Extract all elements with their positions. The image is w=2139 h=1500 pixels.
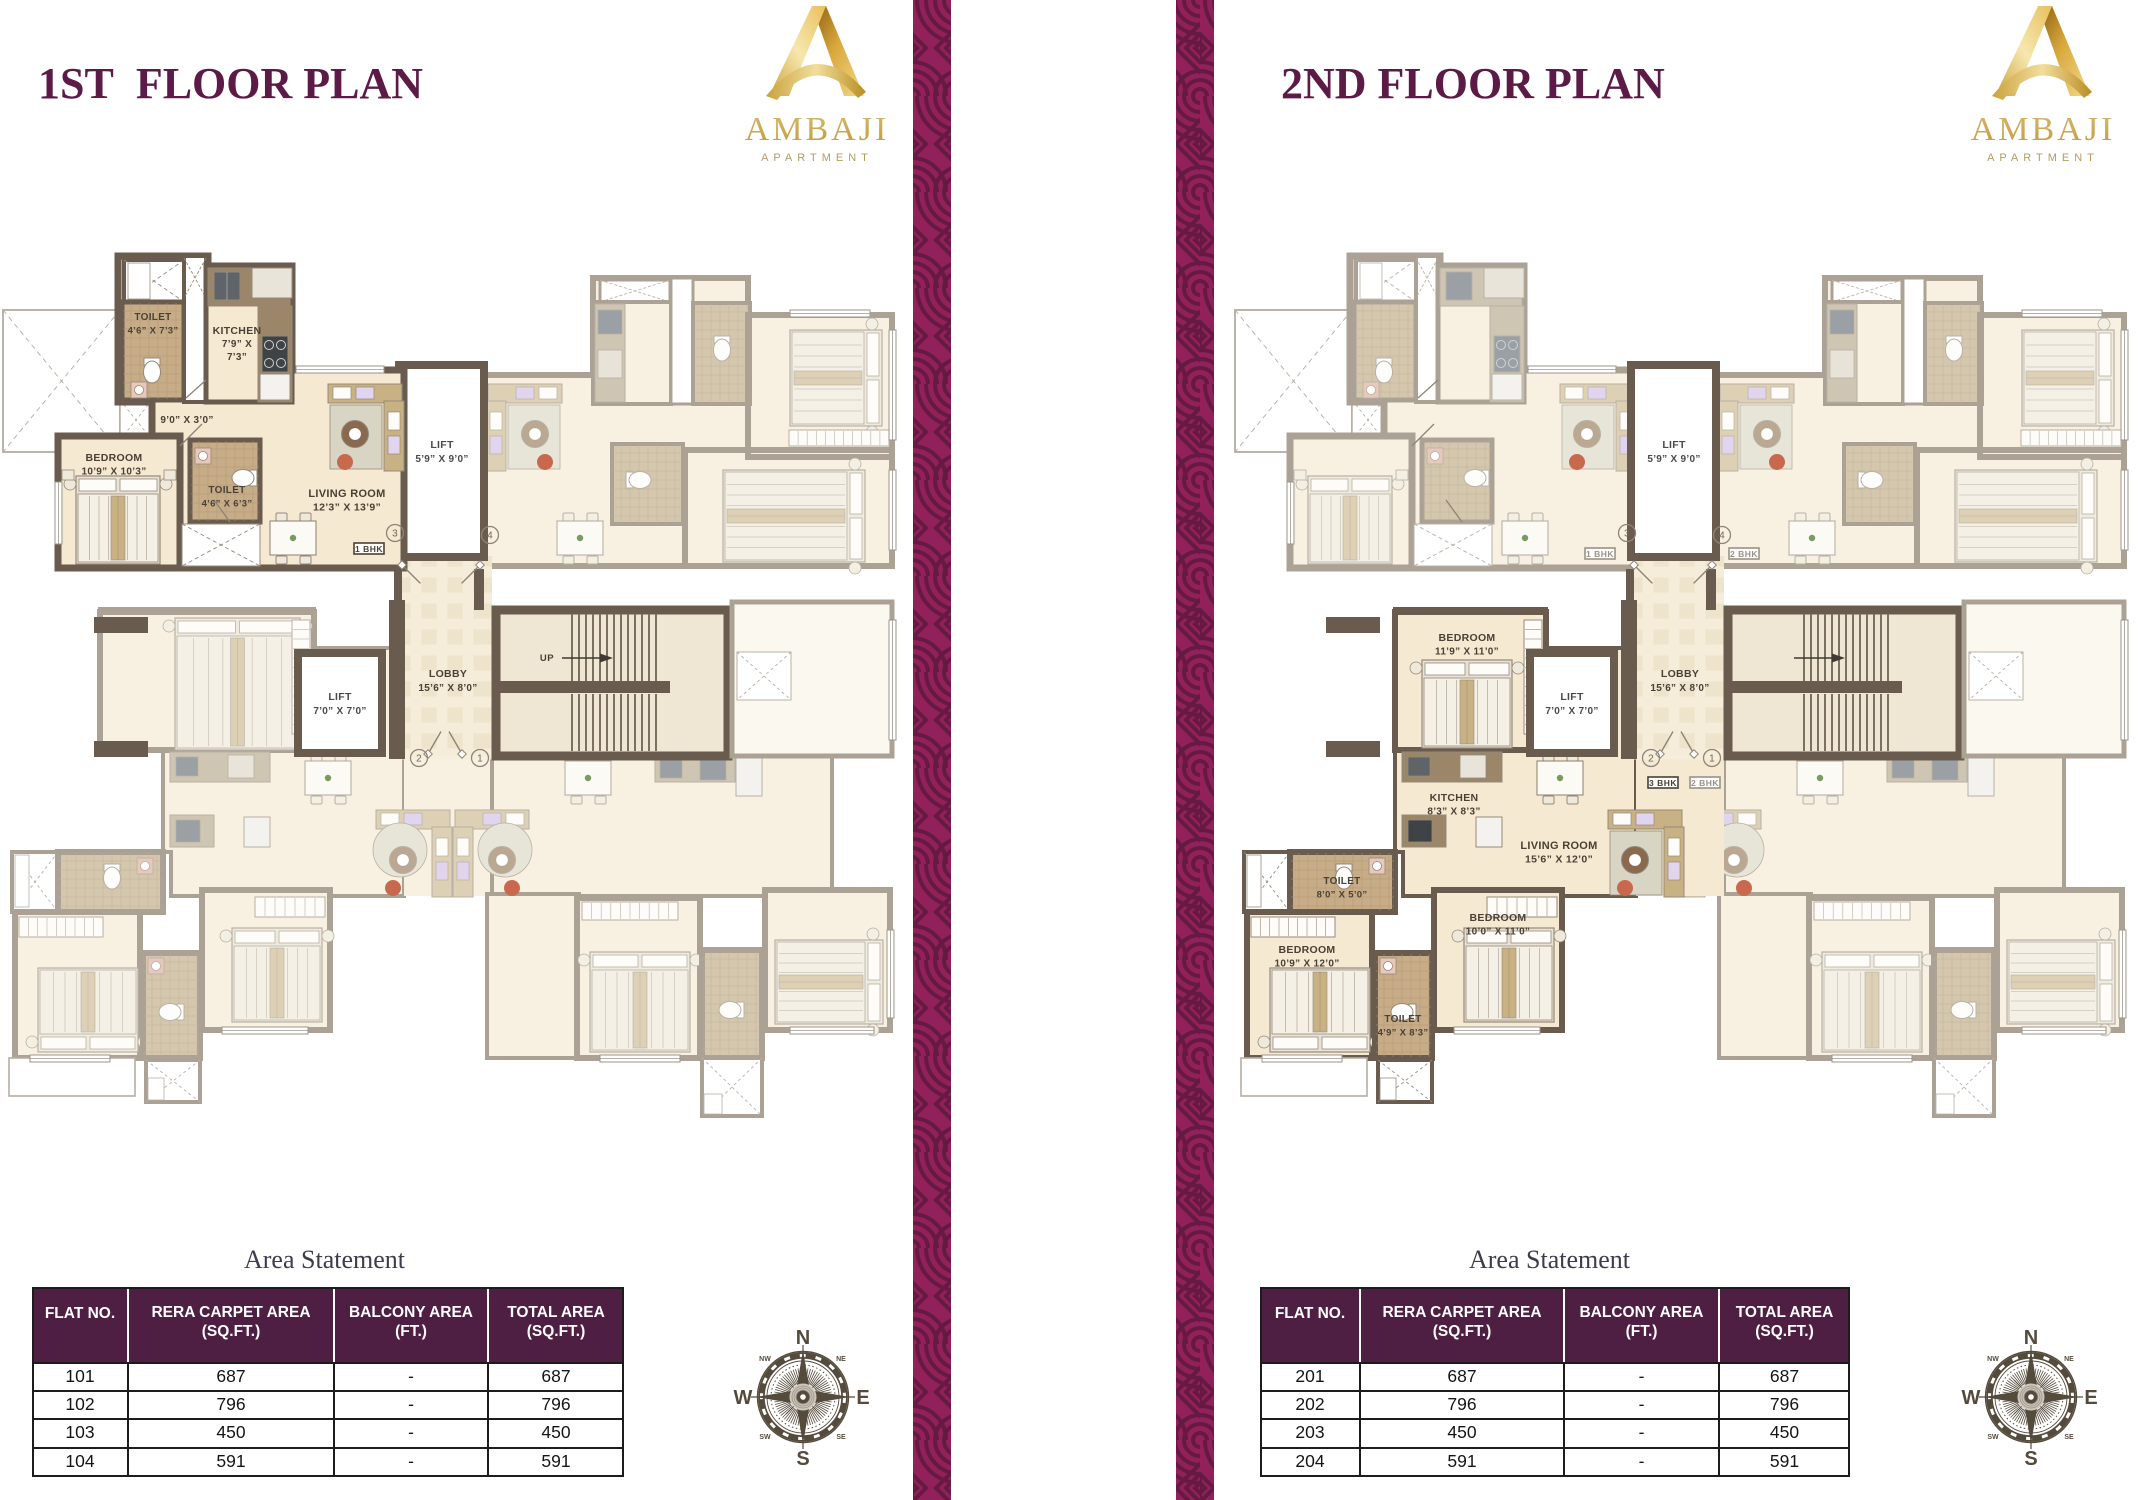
svg-text:4’6” X 6’3”: 4’6” X 6’3” [202,499,253,510]
svg-text:LIFT: LIFT [1560,691,1584,703]
svg-text:4’9” X 8’3”: 4’9” X 8’3” [1378,1028,1429,1039]
svg-text:4’6” X 7’3”: 4’6” X 7’3” [128,326,179,337]
svg-text:LIVING ROOM: LIVING ROOM [1520,840,1597,852]
svg-text:15’6” X 12’0”: 15’6” X 12’0” [1525,854,1593,866]
svg-text:NE: NE [836,1356,846,1363]
svg-text:W: W [734,1387,753,1409]
svg-text:10’0” X 11’0”: 10’0” X 11’0” [1466,927,1531,938]
svg-text:LIFT: LIFT [430,439,454,451]
svg-text:N: N [2024,1327,2038,1349]
svg-text:SW: SW [759,1434,771,1441]
svg-text:KITCHEN: KITCHEN [1430,792,1479,804]
svg-text:W: W [1962,1387,1981,1409]
svg-text:7’9” X: 7’9” X [222,339,252,350]
svg-text:3: 3 [392,529,398,540]
svg-text:S: S [2024,1448,2037,1470]
svg-text:11’9” X 11’0”: 11’9” X 11’0” [1435,647,1499,658]
svg-text:7’0” X 7’0”: 7’0” X 7’0” [1545,706,1598,717]
svg-text:4: 4 [1719,531,1725,542]
svg-text:BEDROOM: BEDROOM [1470,912,1527,924]
svg-text:AMBAJI: AMBAJI [745,111,890,148]
svg-text:LOBBY: LOBBY [1661,668,1699,680]
svg-text:3: 3 [1624,529,1630,540]
svg-text:BEDROOM: BEDROOM [86,452,143,464]
svg-text:10’9” X 10’3”: 10’9” X 10’3” [81,467,146,478]
svg-text:7’0” X 7’0”: 7’0” X 7’0” [313,706,366,717]
svg-text:BEDROOM: BEDROOM [1439,632,1496,644]
svg-text:8’3” X 8’3”: 8’3” X 8’3” [1427,807,1480,818]
svg-text:BEDROOM: BEDROOM [1279,944,1336,956]
svg-text:3 BHK: 3 BHK [1649,778,1677,788]
svg-text:N: N [796,1327,810,1349]
svg-text:APARTMENT: APARTMENT [761,152,873,164]
svg-text:LIFT: LIFT [1662,439,1686,451]
svg-text:TOILET: TOILET [1384,1014,1421,1025]
svg-text:NW: NW [759,1356,771,1363]
svg-text:5’9” X 9’0”: 5’9” X 9’0” [415,454,468,465]
svg-text:SE: SE [836,1434,846,1441]
svg-text:SE: SE [2064,1434,2074,1441]
svg-text:TOILET: TOILET [1323,876,1360,887]
svg-text:SW: SW [1987,1434,1999,1441]
svg-text:1: 1 [477,754,483,765]
svg-text:LOBBY: LOBBY [429,668,467,680]
svg-text:APARTMENT: APARTMENT [1987,152,2099,164]
svg-text:KITCHEN: KITCHEN [213,325,262,337]
svg-text:LIFT: LIFT [328,691,352,703]
svg-text:12’3” X 13’9”: 12’3” X 13’9” [313,502,381,514]
svg-text:5’9” X 9’0”: 5’9” X 9’0” [1647,454,1700,465]
svg-text:LIVING ROOM: LIVING ROOM [308,488,385,500]
svg-text:9’0” X 3’0”: 9’0” X 3’0” [160,415,213,426]
svg-text:E: E [2084,1387,2097,1409]
svg-text:1: 1 [1709,754,1715,765]
svg-text:10’9” X 12’0”: 10’9” X 12’0” [1274,959,1339,970]
svg-text:NW: NW [1987,1356,1999,1363]
svg-text:2 BHK: 2 BHK [1691,778,1719,788]
svg-text:2: 2 [1648,754,1654,765]
svg-text:15’6” X 8’0”: 15’6” X 8’0” [418,683,477,694]
svg-text:S: S [796,1448,809,1470]
svg-text:1 BHK: 1 BHK [355,544,383,554]
svg-text:TOILET: TOILET [208,485,245,496]
svg-text:7’3”: 7’3” [227,352,247,363]
svg-text:4: 4 [487,531,493,542]
svg-text:15’6” X 8’0”: 15’6” X 8’0” [1650,683,1709,694]
svg-text:TOILET: TOILET [134,312,171,323]
svg-text:2 BHK: 2 BHK [1730,549,1758,559]
svg-text:NE: NE [2064,1356,2074,1363]
svg-text:AMBAJI: AMBAJI [1971,111,2116,148]
svg-text:E: E [856,1387,869,1409]
svg-text:2: 2 [416,754,422,765]
svg-text:1 BHK: 1 BHK [1586,549,1614,559]
svg-text:8’0” X 5’0”: 8’0” X 5’0” [1317,890,1368,901]
svg-text:UP: UP [540,653,554,664]
